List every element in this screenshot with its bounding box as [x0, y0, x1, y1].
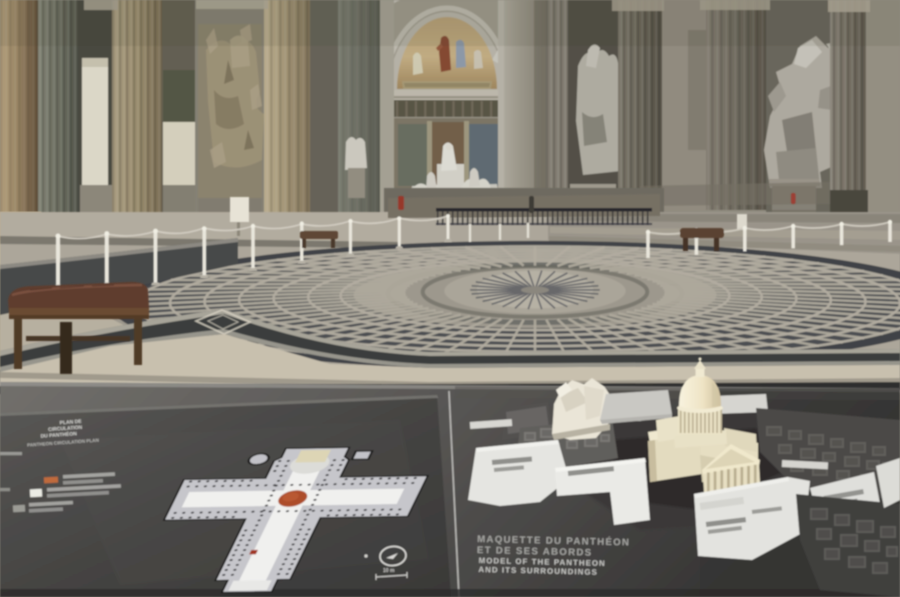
svg-text:10 m: 10 m [383, 568, 395, 574]
